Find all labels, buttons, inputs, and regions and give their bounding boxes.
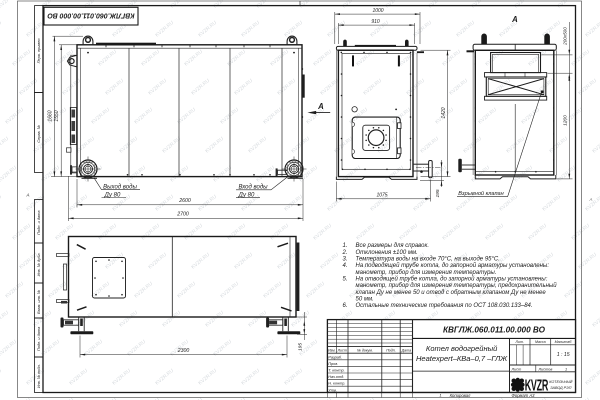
svg-text:1 : 15: 1 : 15: [557, 352, 570, 358]
svg-text:KVZR.RU: KVZR.RU: [97, 223, 118, 242]
svg-text:KVZR.RU: KVZR.RU: [398, 223, 419, 242]
svg-text:KVZR.RU: KVZR.RU: [147, 78, 168, 97]
svg-text:Дата: Дата: [401, 349, 411, 353]
svg-text:KVZR.RU: KVZR.RU: [584, 368, 600, 387]
svg-text:Инв. № подл.: Инв. № подл.: [36, 364, 41, 388]
svg-text:KVZR.RU: KVZR.RU: [197, 194, 218, 213]
svg-text:KVZR.RU: KVZR.RU: [133, 281, 154, 300]
svg-text:KVZR.RU: KVZR.RU: [226, 223, 247, 242]
svg-text:KVZR.RU: KVZR.RU: [147, 252, 168, 271]
svg-text:KVZR.RU: KVZR.RU: [477, 107, 498, 126]
svg-text:KVZR.RU: KVZR.RU: [11, 49, 32, 68]
svg-text:KVZR.RU: KVZR.RU: [0, 20, 3, 39]
svg-text:KVZR.RU: KVZR.RU: [326, 194, 347, 213]
svg-text:KVZR.RU: KVZR.RU: [419, 136, 440, 155]
svg-text:KVZR.RU: KVZR.RU: [226, 49, 247, 68]
svg-text:KVZR.RU: KVZR.RU: [577, 78, 598, 97]
svg-text:А: А: [25, 193, 29, 198]
svg-text:KVZR.RU: KVZR.RU: [11, 397, 32, 400]
svg-text:KVZR.RU: KVZR.RU: [455, 20, 476, 39]
svg-text:KVZR.RU: KVZR.RU: [556, 165, 577, 184]
svg-text:KVZR.RU: KVZR.RU: [233, 78, 254, 97]
svg-text:KVZR.RU: KVZR.RU: [355, 49, 376, 68]
svg-text:KVZR.RU: KVZR.RU: [83, 165, 104, 184]
svg-text:KVZR.RU: KVZR.RU: [0, 194, 3, 213]
svg-text:KVZR.RU: KVZR.RU: [355, 397, 376, 400]
svg-text:KVZR.RU: KVZR.RU: [584, 20, 600, 39]
svg-text:KVZR.RU: KVZR.RU: [0, 339, 18, 358]
svg-text:KVZR.RU: KVZR.RU: [577, 252, 598, 271]
svg-text:KVZR.RU: KVZR.RU: [226, 397, 247, 400]
svg-text:KVZR.RU: KVZR.RU: [0, 0, 18, 10]
svg-text:KVZR.RU: KVZR.RU: [97, 397, 118, 400]
svg-text:6.: 6.: [342, 303, 347, 309]
svg-text:Пров.: Пров.: [328, 362, 338, 366]
svg-text:Масштаб: Масштаб: [555, 340, 573, 344]
svg-text:KVZR.RU: KVZR.RU: [111, 368, 132, 387]
svg-text:KVZR.RU: KVZR.RU: [190, 78, 211, 97]
svg-text:KVZR.RU: KVZR.RU: [18, 78, 39, 97]
svg-text:Вход воды: Вход воды: [238, 185, 268, 191]
svg-text:KVZR.RU: KVZR.RU: [262, 107, 283, 126]
svg-text:KVZR.RU: KVZR.RU: [183, 397, 204, 400]
svg-text:KVZR.RU: KVZR.RU: [240, 368, 261, 387]
svg-text:KVZR.RU: KVZR.RU: [283, 194, 304, 213]
svg-text:KVZR.RU: KVZR.RU: [470, 165, 491, 184]
svg-text:KVZR.RU: KVZR.RU: [283, 20, 304, 39]
svg-text:KVZR.RU: KVZR.RU: [204, 136, 225, 155]
svg-text:KVZR.RU: KVZR.RU: [448, 78, 469, 97]
svg-text:KVZR.RU: KVZR.RU: [283, 368, 304, 387]
svg-text:КОТЕЛЬНЫЙ: КОТЕЛЬНЫЙ: [549, 380, 573, 384]
svg-text:KVZR.RU: KVZR.RU: [319, 252, 340, 271]
svg-text:KVZR.RU: KVZR.RU: [312, 49, 333, 68]
svg-text:KVZR.RU: KVZR.RU: [0, 368, 3, 387]
svg-text:клапан Ду не менее 50 и отвод: клапан Ду не менее 50 и отвод с обратным…: [356, 290, 547, 296]
svg-text:Лит.: Лит.: [514, 340, 523, 344]
svg-text:Лист: Лист: [337, 349, 347, 353]
svg-text:KVZR.RU: KVZR.RU: [176, 281, 197, 300]
svg-text:№ докум.: № докум.: [357, 349, 373, 353]
svg-text:KVZR.RU: KVZR.RU: [384, 0, 405, 10]
svg-text:KVZR.RU: KVZR.RU: [140, 397, 161, 400]
svg-text:KVZR.RU: KVZR.RU: [312, 397, 333, 400]
svg-text:KVZR.RU: KVZR.RU: [398, 397, 419, 400]
svg-text:KVZR.RU: KVZR.RU: [441, 49, 462, 68]
svg-text:KVZR.RU: KVZR.RU: [570, 49, 591, 68]
svg-text:1550: 1550: [54, 110, 60, 121]
svg-text:KVZR.RU: KVZR.RU: [255, 165, 276, 184]
svg-text:KVZR: KVZR: [525, 377, 548, 394]
svg-text:KVZR.RU: KVZR.RU: [219, 281, 240, 300]
svg-text:Heatexpert–КВа–0,7 –ГЛЖ: Heatexpert–КВа–0,7 –ГЛЖ: [416, 354, 508, 363]
svg-text:KVZR.RU: KVZR.RU: [233, 252, 254, 271]
svg-text:KVZR.RU: KVZR.RU: [548, 136, 569, 155]
svg-text:Остальные технические требован: Остальные технические требования по ОСТ …: [356, 303, 533, 309]
svg-text:1420: 1420: [441, 107, 447, 118]
svg-text:KVZR.RU: KVZR.RU: [290, 136, 311, 155]
svg-text:KVZR.RU: KVZR.RU: [391, 107, 412, 126]
svg-text:KVZR.RU: KVZR.RU: [484, 49, 505, 68]
svg-text:4.: 4.: [342, 263, 347, 269]
svg-text:KVZR.RU: KVZR.RU: [154, 194, 175, 213]
svg-text:KVZR.RU: KVZR.RU: [556, 0, 577, 10]
svg-text:ЗАВОД РЭП: ЗАВОД РЭП: [550, 386, 571, 390]
svg-text:А: А: [588, 197, 592, 202]
svg-text:Температура воды на входе 70°С: Температура воды на входе 70°С, на выход…: [356, 256, 500, 262]
svg-text:910: 910: [371, 19, 380, 25]
svg-text:KVZR.RU: KVZR.RU: [197, 368, 218, 387]
svg-text:KVZR.RU: KVZR.RU: [183, 49, 204, 68]
svg-text:Подп. и дата: Подп. и дата: [36, 326, 41, 351]
svg-text:KVZR.RU: KVZR.RU: [75, 136, 96, 155]
svg-text:KVZR.RU: KVZR.RU: [4, 281, 25, 300]
svg-text:KVZR.RU: KVZR.RU: [570, 397, 591, 400]
svg-text:KVZR.RU: KVZR.RU: [513, 0, 534, 10]
svg-text:Справ. №: Справ. №: [36, 124, 41, 142]
svg-text:Взрывной клапан: Взрывной клапан: [458, 190, 503, 197]
svg-text:195: 195: [435, 189, 441, 197]
svg-text:KVZR.RU: KVZR.RU: [61, 252, 82, 271]
svg-text:KVZR.RU: KVZR.RU: [341, 165, 362, 184]
svg-text:KVZR.RU: KVZR.RU: [104, 78, 125, 97]
svg-text:KVZR.RU: KVZR.RU: [570, 223, 591, 242]
svg-text:KVZR.RU: KVZR.RU: [527, 223, 548, 242]
svg-text:KVZR.RU: KVZR.RU: [169, 0, 190, 10]
svg-text:KVZR.RU: KVZR.RU: [183, 223, 204, 242]
svg-text:KVZR.RU: KVZR.RU: [90, 281, 111, 300]
svg-text:KVZR.RU: KVZR.RU: [591, 136, 600, 155]
svg-text:KVZR.RU: KVZR.RU: [541, 194, 562, 213]
svg-text:KVZR.RU: KVZR.RU: [247, 136, 268, 155]
svg-text:Подп.: Подп.: [386, 349, 396, 353]
svg-text:Утв.: Утв.: [328, 388, 337, 392]
svg-text:KVZR.RU: KVZR.RU: [0, 165, 18, 184]
svg-text:KVZR.RU: KVZR.RU: [405, 78, 426, 97]
svg-text:KVZR.RU: KVZR.RU: [269, 223, 290, 242]
svg-text:2600: 2600: [178, 198, 191, 204]
svg-text:KVZR.RU: KVZR.RU: [197, 20, 218, 39]
svg-text:KVZR.RU: KVZR.RU: [319, 78, 340, 97]
svg-text:KVZR.RU: KVZR.RU: [341, 0, 362, 10]
svg-text:Взам. инв. №: Взам. инв. №: [36, 289, 41, 314]
svg-text:KVZR.RU: KVZR.RU: [0, 136, 10, 155]
svg-text:KVZR.RU: KVZR.RU: [484, 397, 505, 400]
svg-text:KVZR.RU: KVZR.RU: [54, 49, 75, 68]
svg-text:А: А: [511, 15, 518, 24]
svg-text:KVZR.RU: KVZR.RU: [118, 310, 139, 329]
svg-text:KVZR.RU: KVZR.RU: [520, 107, 541, 126]
svg-text:1: 1: [439, 393, 441, 398]
svg-text:KVZR.RU: KVZR.RU: [176, 107, 197, 126]
svg-text:KVZR.RU: KVZR.RU: [484, 223, 505, 242]
svg-text:2700: 2700: [176, 212, 189, 218]
svg-text:Листов: Листов: [538, 367, 553, 371]
svg-text:KVZR.RU: KVZR.RU: [68, 368, 89, 387]
svg-text:Изм.: Изм.: [328, 349, 336, 353]
svg-text:Отклонения ±100 мм.: Отклонения ±100 мм.: [356, 250, 418, 256]
svg-text:1.: 1.: [342, 243, 347, 249]
svg-text:KVZR.RU: KVZR.RU: [4, 107, 25, 126]
svg-text:Формат А3: Формат А3: [512, 393, 536, 398]
svg-text:KVZR.RU: KVZR.RU: [591, 310, 600, 329]
svg-text:1075: 1075: [376, 193, 387, 199]
svg-text:KVZR.RU: KVZR.RU: [97, 49, 118, 68]
svg-text:Перв. примен.: Перв. примен.: [36, 38, 41, 64]
svg-text:KVZR.RU: KVZR.RU: [269, 49, 290, 68]
svg-text:Копировал: Копировал: [450, 393, 471, 398]
svg-text:KVZR.RU: KVZR.RU: [212, 0, 233, 10]
svg-text:KVZR.RU: KVZR.RU: [140, 49, 161, 68]
svg-text:KVZR.RU: KVZR.RU: [11, 223, 32, 242]
svg-text:Н. контр.: Н. контр.: [328, 382, 345, 386]
svg-text:KVZR.RU: KVZR.RU: [154, 20, 175, 39]
svg-text:KVZR.RU: KVZR.RU: [276, 78, 297, 97]
svg-text:KVZR.RU: KVZR.RU: [355, 223, 376, 242]
svg-text:Все размеры для справок.: Все размеры для справок.: [356, 243, 430, 249]
svg-text:Нач.отд.: Нач.отд.: [328, 375, 344, 379]
svg-text:KVZR.RU: KVZR.RU: [154, 368, 175, 387]
svg-text:KVZR.RU: KVZR.RU: [305, 281, 326, 300]
svg-text:KVZR.RU: KVZR.RU: [290, 310, 311, 329]
svg-text:KVZR.RU: KVZR.RU: [505, 136, 526, 155]
svg-text:KVZR.RU: KVZR.RU: [441, 223, 462, 242]
svg-text:KVZR.RU: KVZR.RU: [276, 252, 297, 271]
svg-text:50 мм.: 50 мм.: [356, 296, 374, 302]
svg-text:Котел водогрейный: Котел водогрейный: [426, 344, 498, 353]
svg-text:KVZR.RU: KVZR.RU: [61, 78, 82, 97]
svg-text:2300: 2300: [177, 348, 190, 354]
svg-text:Масса: Масса: [535, 340, 546, 344]
svg-text:KVZR.RU: KVZR.RU: [0, 310, 10, 329]
svg-text:KVZR.RU: KVZR.RU: [269, 397, 290, 400]
svg-text:1660: 1660: [48, 110, 54, 121]
svg-text:Инв. № дубл.: Инв. № дубл.: [36, 252, 41, 276]
svg-text:На отводящей трубе котла, до з: На отводящей трубе котла, до запорной ар…: [356, 275, 548, 282]
svg-text:KVZR.RU: KVZR.RU: [68, 194, 89, 213]
svg-text:KVZR.RU: KVZR.RU: [326, 20, 347, 39]
svg-text:KVZR.RU: KVZR.RU: [427, 0, 448, 10]
svg-text:Т. контр.: Т. контр.: [328, 369, 344, 373]
svg-text:KVZR.RU: KVZR.RU: [204, 310, 225, 329]
svg-text:КВГЛЖ.060.011.00.000 ВО: КВГЛЖ.060.011.00.000 ВО: [443, 326, 546, 335]
svg-text:KVZR.RU: KVZR.RU: [527, 49, 548, 68]
svg-text:KVZR.RU: KVZR.RU: [412, 20, 433, 39]
svg-text:200х500: 200х500: [563, 27, 568, 46]
svg-text:манометр, прибор для измерения: манометр, прибор для измерения температу…: [356, 270, 497, 276]
svg-text:KVZR.RU: KVZR.RU: [190, 252, 211, 271]
svg-text:Лист: Лист: [511, 367, 522, 371]
svg-text:KVZR.RU: KVZR.RU: [312, 223, 333, 242]
svg-text:KVZR.RU: KVZR.RU: [126, 165, 147, 184]
svg-text:KVZR.RU: KVZR.RU: [398, 49, 419, 68]
svg-text:1: 1: [565, 367, 567, 371]
svg-text:KVZR.RU: KVZR.RU: [240, 20, 261, 39]
svg-text:KVZR.RU: KVZR.RU: [54, 223, 75, 242]
svg-text:Выход воды: Выход воды: [103, 185, 137, 191]
svg-text:KVZR.RU: KVZR.RU: [255, 0, 276, 10]
svg-text:манометр, прибор для измерения: манометр, прибор для измерения температу…: [356, 282, 558, 289]
svg-text:KVZR.RU: KVZR.RU: [384, 165, 405, 184]
svg-text:3.: 3.: [342, 256, 347, 262]
svg-text:2.: 2.: [341, 250, 347, 256]
svg-text:На подводящей трубе котла, до: На подводящей трубе котла, до запорной а…: [356, 262, 550, 269]
svg-text:KVZR.RU: KVZR.RU: [247, 310, 268, 329]
svg-text:5.: 5.: [342, 276, 347, 282]
svg-text:А: А: [317, 102, 324, 111]
svg-text:1000: 1000: [372, 8, 383, 14]
svg-text:KVZR.RU: KVZR.RU: [90, 107, 111, 126]
svg-text:KVZR.RU: KVZR.RU: [133, 107, 154, 126]
svg-text:KVZR.RU: KVZR.RU: [362, 78, 383, 97]
svg-text:Разраб.: Разраб.: [328, 355, 342, 359]
svg-text:KVZR.RU: KVZR.RU: [298, 0, 319, 10]
svg-text:KVZR.RU: KVZR.RU: [470, 0, 491, 10]
svg-text:KVZR.RU: KVZR.RU: [513, 165, 534, 184]
svg-text:1200: 1200: [563, 115, 569, 126]
svg-text:KVZR.RU: KVZR.RU: [54, 397, 75, 400]
svg-text:KVZR.RU: KVZR.RU: [140, 223, 161, 242]
svg-text:Подп. и дата: Подп. и дата: [36, 210, 41, 235]
svg-text:KVZR.RU: KVZR.RU: [262, 281, 283, 300]
svg-text:195: 195: [298, 343, 304, 351]
svg-text:КВГЛЖ.060.011.00.000 ВО: КВГЛЖ.060.011.00.000 ВО: [47, 11, 135, 18]
